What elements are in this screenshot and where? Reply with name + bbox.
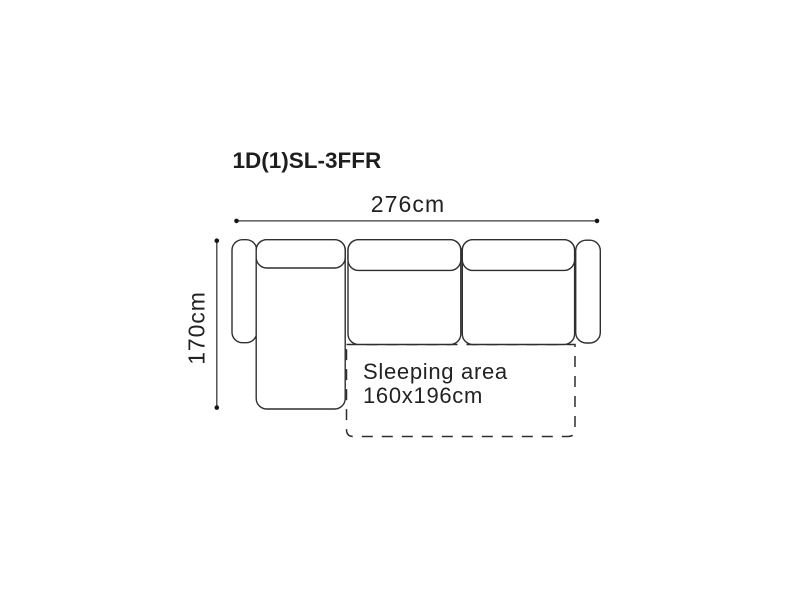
svg-text:Sleeping area: Sleeping area (363, 359, 508, 384)
svg-text:160x196cm: 160x196cm (363, 383, 483, 408)
svg-text:170cm: 170cm (184, 291, 210, 365)
svg-text:1D(1)SL-3FFR: 1D(1)SL-3FFR (233, 148, 382, 173)
svg-text:276cm: 276cm (371, 191, 446, 217)
